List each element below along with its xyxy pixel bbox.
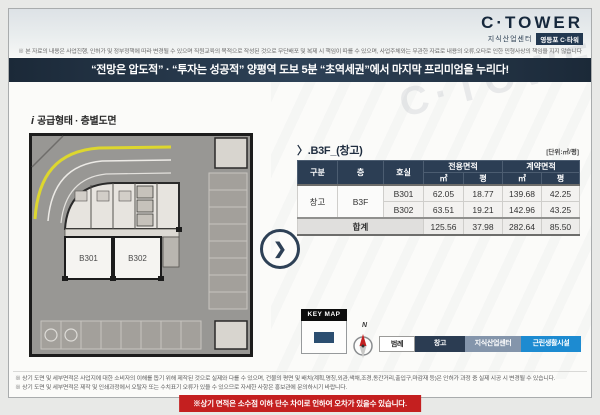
col-header-m2: ㎡ — [503, 173, 542, 186]
col-header-py: 평 — [464, 173, 503, 186]
cell-ex-m2: 63.51 — [424, 202, 464, 219]
section-label-text: 공급형태 · 층별도면 — [37, 112, 116, 127]
legend-item-knowledge-industry-center: 지식산업센터 — [465, 336, 521, 352]
floor-plan: B301 B302 — [29, 133, 253, 357]
cell-ex-m2: 62.05 — [424, 185, 464, 202]
flyer-card: C·TOWER C·TOWER 지식산업센터 영등포 C·타워 ※ 본 자료의 … — [8, 8, 592, 398]
keymap-site-marker — [314, 332, 334, 343]
cell-room: B302 — [384, 202, 424, 219]
parking-stalls-bottom — [41, 321, 201, 349]
legend-item-title: 범례 — [379, 336, 415, 352]
keymap: KEY MAP — [301, 309, 347, 354]
table-row: 창고 B3F B301 62.05 18.77 139.68 42.25 — [298, 185, 580, 202]
footer-note-1: ※ 상기 도면 및 세부면적은 사업지에 대한 소비자의 이해를 돕기 위해 제… — [15, 375, 587, 384]
headline-banner: “전망은 압도적” · “투자는 성공적” 양평역 도보 5분 “초역세권”에서… — [9, 58, 591, 82]
col-header-py: 평 — [542, 173, 580, 186]
table-total-row: 합계 125.56 37.98 282.64 85.50 — [298, 218, 580, 235]
brand-logo: C·TOWER 지식산업센터 영등포 C·타워 — [481, 14, 583, 45]
floor-plan-svg: B301 B302 — [29, 133, 253, 357]
table-unit-label: [단위:㎡/평] — [546, 146, 579, 156]
elevator-cell — [137, 214, 153, 226]
cell-total-ex-py: 37.98 — [464, 218, 503, 235]
col-header-room: 호실 — [384, 161, 424, 186]
legend-item-warehouse: 창고 — [415, 336, 465, 352]
table-title: 〉.B3F_(창고) — [297, 142, 363, 158]
footer-divider — [13, 371, 587, 372]
chevron-right-icon[interactable]: ❯ — [260, 229, 300, 269]
area-table: 구분 층 호실 전용면적 계약면적 ㎡ 평 ㎡ 평 창고 B3F B301 62… — [297, 160, 580, 236]
info-icon: i — [31, 115, 34, 127]
cell-total-ct-py: 85.50 — [542, 218, 580, 235]
cell-room: B301 — [384, 185, 424, 202]
cell-total-label: 합계 — [298, 218, 424, 235]
flyer-page: { "brand": { "logo_text": "C·TOWER", "lo… — [0, 0, 600, 415]
cell-total-ex-m2: 125.56 — [424, 218, 464, 235]
top-disclaimer-text: ※ 본 자료의 내용은 사업진행, 인허가 및 정부정책에 따라 변경될 수 있… — [9, 46, 591, 55]
room-b302: B302 — [114, 237, 161, 279]
footer-note-2: ※ 상기 도면 및 세부면적은 제작 및 인쇄과정에서 오탈자 또는 수치표기 … — [15, 384, 587, 393]
compass-icon: N — [351, 322, 377, 362]
room-b302-label: B302 — [128, 254, 147, 263]
keymap-title: KEY MAP — [301, 309, 347, 321]
brand-logo-subtitle: 지식산업센터 — [488, 34, 533, 44]
legend-bar: 범례 창고 지식산업센터 근린생활시설 — [379, 336, 581, 352]
room-b301: B301 — [65, 237, 112, 279]
brand-logo-text: C·TOWER — [481, 14, 583, 32]
footer-notes: ※ 상기 도면 및 세부면적은 사업지에 대한 소비자의 이해를 돕기 위해 제… — [15, 375, 587, 393]
col-header-gubun: 구분 — [298, 161, 338, 186]
cell-ex-py: 19.21 — [464, 202, 503, 219]
legend-item-neighborhood-facility: 근린생활시설 — [521, 336, 581, 352]
keymap-box — [301, 321, 347, 354]
cell-ct-py: 43.25 — [542, 202, 580, 219]
elevator-cell — [137, 200, 153, 212]
table-header-row: 〉.B3F_(창고) [단위:㎡/평] — [297, 142, 579, 158]
col-header-m2: ㎡ — [424, 173, 464, 186]
col-header-floor: 층 — [338, 161, 384, 186]
area-warning-banner: ※상기 면적은 소수점 이하 단수 차이로 인하여 오차가 있을수 있습니다. — [179, 395, 421, 412]
parking-stalls-right — [209, 173, 247, 309]
cell-gubun: 창고 — [298, 185, 338, 218]
cell-ct-py: 42.25 — [542, 185, 580, 202]
col-header-exclusive: 전용면적 — [424, 161, 503, 173]
cell-ct-m2: 139.68 — [503, 185, 542, 202]
cell-total-ct-m2: 282.64 — [503, 218, 542, 235]
section-label-floorplan: i 공급형태 · 층별도면 — [31, 112, 116, 127]
cell-ct-m2: 142.96 — [503, 202, 542, 219]
cell-floor: B3F — [338, 185, 384, 218]
brand-logo-badge: 영등포 C·타워 — [536, 33, 583, 45]
col-header-contract: 계약면적 — [503, 161, 580, 173]
cell-ex-py: 18.77 — [464, 185, 503, 202]
room-b301-label: B301 — [79, 254, 98, 263]
elevator-cell — [137, 186, 153, 198]
compass-north-label: N — [362, 322, 367, 329]
